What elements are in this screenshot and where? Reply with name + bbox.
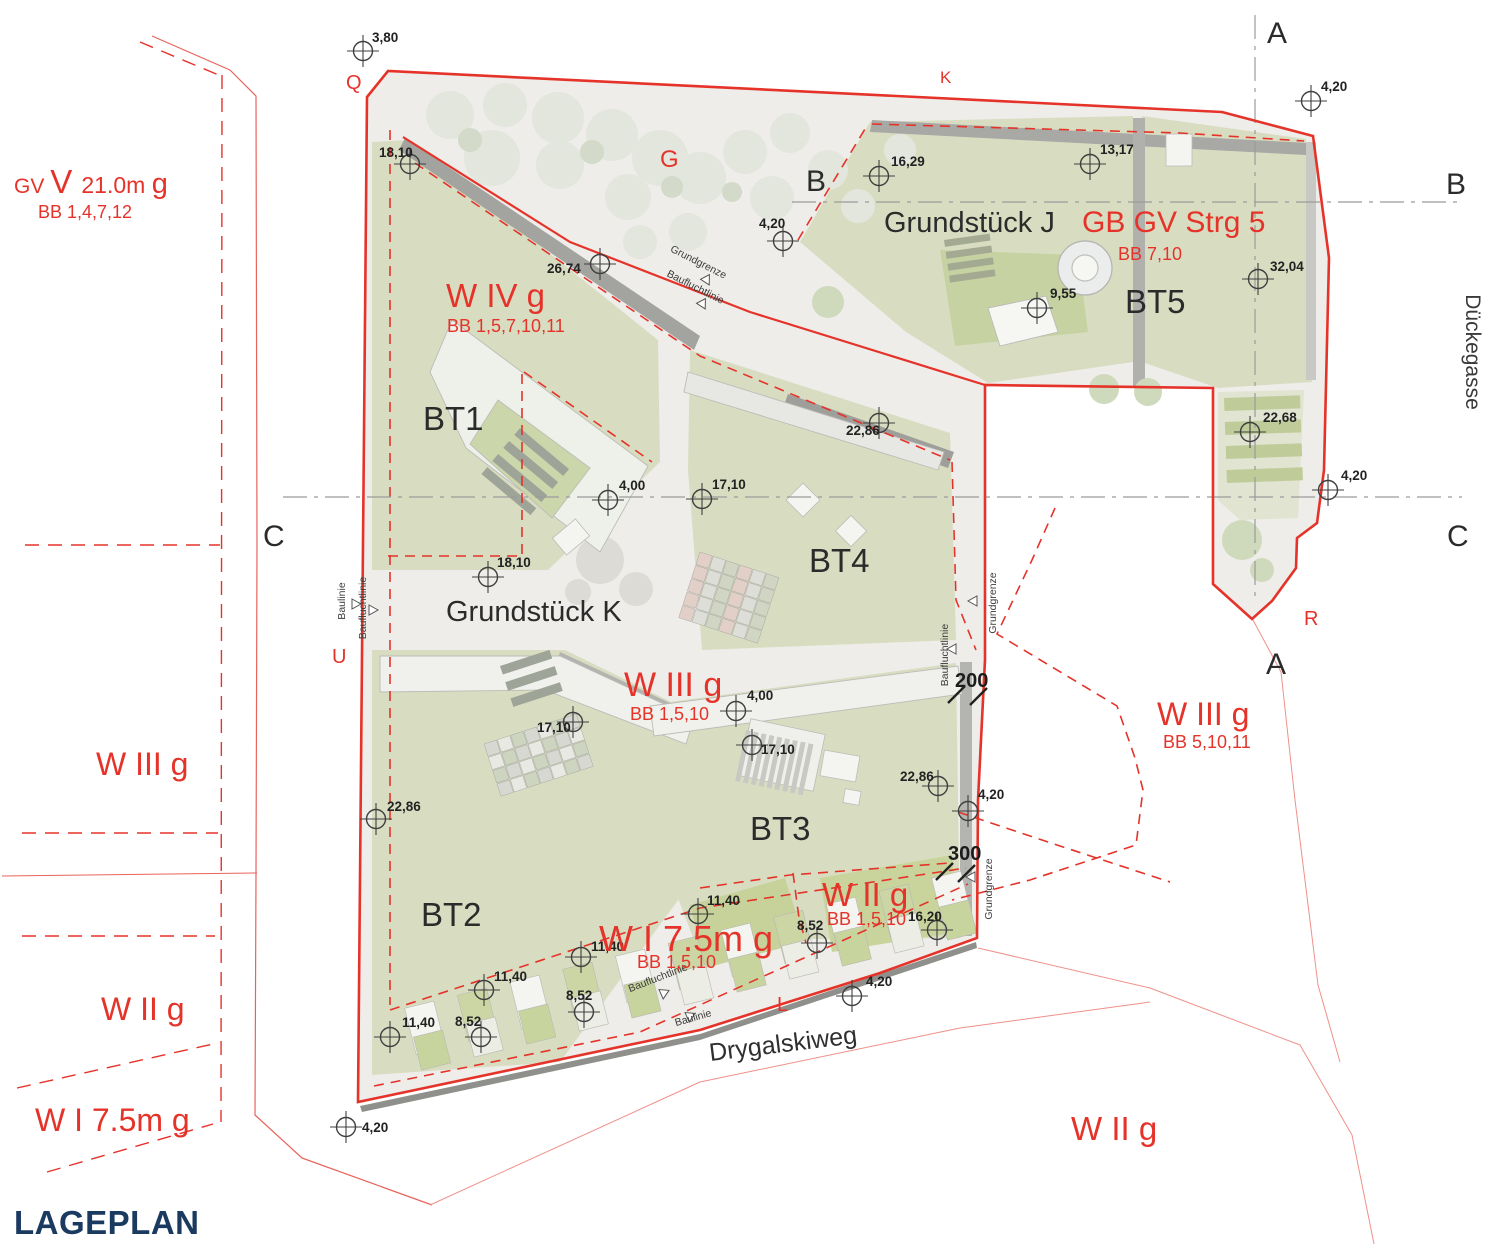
section-letter: C bbox=[1447, 520, 1469, 553]
section-letter: A bbox=[1267, 17, 1287, 50]
survey-value: 17,10 bbox=[537, 720, 571, 735]
survey-value: 13,17 bbox=[1100, 142, 1134, 157]
tree bbox=[1250, 558, 1274, 582]
survey-value: 17,10 bbox=[712, 477, 746, 492]
survey-value: 18,10 bbox=[497, 555, 531, 570]
zone-sublabel: BB 1,5,7,10,11 bbox=[447, 316, 565, 336]
boundary-point-letter: G bbox=[660, 146, 679, 173]
line-label: Grundgrenze bbox=[987, 572, 999, 633]
zone-sublabel: BB 1,5,10 bbox=[827, 909, 906, 929]
zone-label: W II g bbox=[822, 876, 908, 913]
site-plan-svg: 3,804,2018,1016,2913,1726,744,209,5532,0… bbox=[0, 0, 1500, 1256]
building-label: BT5 bbox=[1125, 283, 1186, 320]
lageplan-page: 3,804,2018,1016,2913,1726,744,209,5532,0… bbox=[0, 0, 1500, 1256]
zone-sublabel: BB 1,4,7,12 bbox=[38, 202, 132, 222]
plaza-circle bbox=[1072, 255, 1098, 281]
survey-value: 11,40 bbox=[707, 893, 740, 908]
zone-sublabel: BB 1,5,10 bbox=[630, 704, 709, 724]
zone-sublabel: BB 7,10 bbox=[1118, 244, 1182, 264]
line-label: Baufluchtlinie bbox=[357, 577, 369, 640]
tree bbox=[580, 140, 604, 164]
survey-value: 8,52 bbox=[797, 918, 823, 933]
street-label: Dückegasse bbox=[1461, 294, 1484, 410]
survey-value: 8,52 bbox=[455, 1014, 481, 1029]
zone-label: W II g bbox=[101, 991, 185, 1027]
tree bbox=[483, 83, 527, 127]
section-letter: B bbox=[806, 165, 826, 198]
building-roof bbox=[1166, 134, 1192, 166]
zone-label: W I 7.5m g bbox=[35, 1102, 190, 1138]
boundary-point-letter: R bbox=[1304, 608, 1318, 630]
survey-value: 22,86 bbox=[387, 799, 421, 814]
boundary-point-letter: L bbox=[777, 994, 788, 1016]
line-label: Baulinie bbox=[336, 582, 348, 620]
survey-value: 11,40 bbox=[494, 969, 527, 984]
tree bbox=[458, 128, 482, 152]
zone-sublabel: BB 1,5,10 bbox=[637, 952, 716, 972]
building-label: Grundstück K bbox=[446, 596, 622, 628]
survey-value: 9,55 bbox=[1050, 286, 1077, 301]
building-label: BT4 bbox=[809, 542, 870, 579]
zone-sublabel: BB 5,10,11 bbox=[1163, 732, 1251, 752]
survey-value: 32,04 bbox=[1270, 259, 1304, 274]
tree bbox=[1134, 378, 1162, 406]
line-label: Baufluchtlinie bbox=[939, 624, 951, 687]
survey-value: 3,80 bbox=[372, 30, 398, 45]
survey-value: 4,00 bbox=[619, 478, 645, 493]
survey-value: 4,20 bbox=[978, 787, 1004, 802]
survey-value: 16,20 bbox=[908, 909, 942, 924]
zone-label: W II g bbox=[1071, 1110, 1157, 1147]
survey-value: 17,10 bbox=[761, 742, 795, 757]
building-label: BT3 bbox=[750, 810, 811, 847]
tree bbox=[674, 152, 726, 204]
tree bbox=[723, 130, 767, 174]
survey-value: 22,68 bbox=[1263, 410, 1297, 425]
building-label: BT2 bbox=[421, 896, 482, 933]
zone-label: W III g bbox=[624, 666, 722, 704]
survey-value: 4,20 bbox=[866, 974, 892, 989]
survey-value: 18,10 bbox=[379, 145, 413, 160]
survey-value: 4,20 bbox=[1321, 79, 1347, 94]
tree bbox=[532, 92, 584, 144]
line-label: Grundgrenze bbox=[983, 858, 995, 919]
tree bbox=[623, 225, 657, 259]
measure-value: 200 bbox=[955, 670, 988, 692]
page-title: LAGEPLAN bbox=[14, 1204, 200, 1242]
survey-value: 4,20 bbox=[759, 216, 785, 231]
zone-label: W III g bbox=[96, 746, 188, 782]
survey-value: 22,86 bbox=[846, 423, 880, 438]
survey-value: 16,29 bbox=[891, 154, 925, 169]
survey-value: 4,00 bbox=[747, 688, 773, 703]
zone-label: GB GV Strg 5 bbox=[1082, 206, 1265, 239]
tree bbox=[661, 176, 683, 198]
tree bbox=[605, 174, 651, 220]
tree bbox=[812, 286, 844, 318]
boundary-point-letter: Q bbox=[346, 72, 362, 94]
tree bbox=[841, 189, 875, 223]
zone-label: W IV g bbox=[446, 277, 545, 314]
building-label: BT1 bbox=[423, 400, 484, 437]
zone-label: W III g bbox=[1157, 696, 1249, 732]
tree bbox=[770, 113, 810, 153]
building-roof bbox=[843, 789, 861, 806]
tree bbox=[536, 141, 584, 189]
building-label: Grundstück J bbox=[884, 207, 1055, 239]
tree bbox=[750, 176, 794, 220]
section-letter: A bbox=[1266, 648, 1286, 681]
tree bbox=[1222, 520, 1262, 560]
tree bbox=[619, 572, 653, 606]
survey-value: 11,40 bbox=[402, 1015, 435, 1030]
boundary-point-letter: U bbox=[332, 646, 346, 668]
survey-value: 22,86 bbox=[900, 769, 934, 784]
survey-value: 26,74 bbox=[547, 261, 581, 276]
section-letter: C bbox=[263, 520, 285, 553]
survey-value: 4,20 bbox=[362, 1120, 388, 1135]
tree bbox=[1089, 374, 1119, 404]
measure-value: 300 bbox=[948, 843, 981, 865]
section-letter: B bbox=[1446, 168, 1466, 201]
tree bbox=[722, 182, 742, 202]
survey-value: 8,52 bbox=[566, 988, 592, 1003]
boundary-point-letter: K bbox=[940, 68, 952, 87]
survey-value: 4,20 bbox=[1341, 468, 1367, 483]
